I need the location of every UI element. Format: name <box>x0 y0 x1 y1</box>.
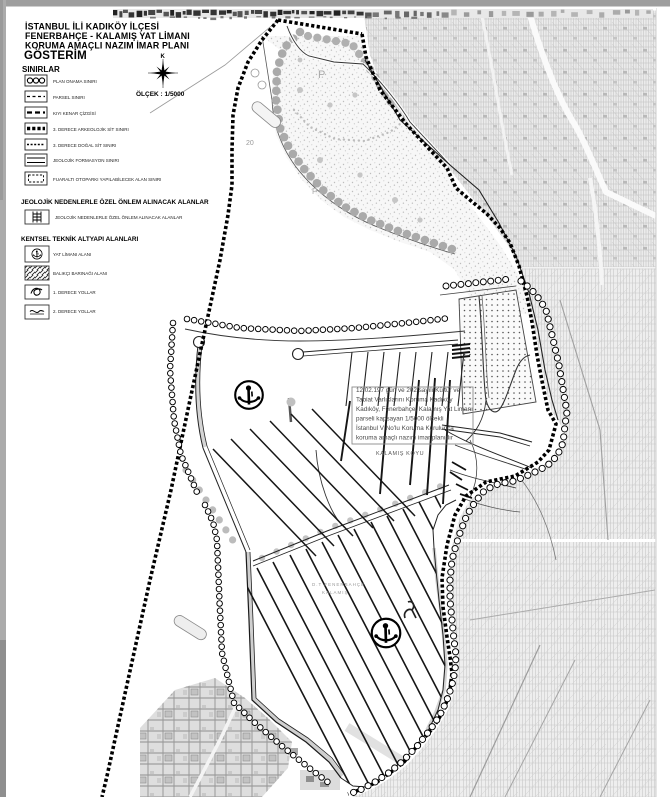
svg-text:ÖLÇEK : 1/5000: ÖLÇEK : 1/5000 <box>136 89 185 98</box>
svg-text:2. DERECE YOLLAR: 2. DERECE YOLLAR <box>53 309 96 314</box>
svg-text:3. DERECE ARKEOLOJİK SİT SINIR: 3. DERECE ARKEOLOJİK SİT SINIRI <box>53 126 129 132</box>
svg-text:12.02.197 gün ve 202 sayılı Kü: 12.02.197 gün ve 202 sayılı Kültür ve <box>356 387 460 394</box>
svg-text:JEOLOJİK NEDENLERLE ÖZEL ÖNLEM: JEOLOJİK NEDENLERLE ÖZEL ÖNLEM ALINACAK … <box>55 214 183 220</box>
svg-text:KIYI KENAR ÇİZGİSİ: KIYI KENAR ÇİZGİSİ <box>53 110 96 116</box>
svg-text:KALAMIŞ KOYU: KALAMIŞ KOYU <box>376 451 424 457</box>
svg-text:P: P <box>318 69 325 81</box>
svg-text:YAT LİMANI ALANI: YAT LİMANI ALANI <box>53 251 91 257</box>
svg-text:D.T FENERBAHÇE: D.T FENERBAHÇE <box>312 582 365 587</box>
svg-text:BALIKÇI BARINAĞI ALANI: BALIKÇI BARINAĞI ALANI <box>53 270 107 276</box>
svg-text:KORUMA AMAÇLI NAZIM İMAR PLANI: KORUMA AMAÇLI NAZIM İMAR PLANI <box>25 41 189 51</box>
svg-text:FENERBAHÇE - KALAMIŞ YAT LİMAN: FENERBAHÇE - KALAMIŞ YAT LİMANI <box>25 31 190 41</box>
svg-text:parseli kapsayan 1/5000 ölç: parseli kapsayan 1/5000 ölçekli <box>356 416 444 423</box>
svg-text:P: P <box>312 187 317 196</box>
svg-text:SINIRLAR: SINIRLAR <box>22 65 60 74</box>
svg-text:koruma amaçlı nazım imar planı: koruma amaçlı nazım imar planıdır <box>356 435 453 442</box>
svg-text:KALAMIŞ: KALAMIŞ <box>322 590 349 595</box>
svg-text:20: 20 <box>246 140 254 147</box>
svg-text:KENTSEL TEKNİK ALTYAPI ALANLAR: KENTSEL TEKNİK ALTYAPI ALANLARI <box>21 234 139 243</box>
svg-text:FUARALTI OTOPARKI YAPILABİLECE: FUARALTI OTOPARKI YAPILABİLECEK ALAN SIN… <box>53 176 161 182</box>
svg-text:3. DERECE DOĞAL SİT SINIRI: 3. DERECE DOĞAL SİT SINIRI <box>53 142 116 148</box>
svg-text:JEOLOJİK NEDENLERLE ÖZEL ÖNLEM: JEOLOJİK NEDENLERLE ÖZEL ÖNLEM ALINACAK … <box>21 197 209 206</box>
svg-text:PLAN ONAMA SINIRI: PLAN ONAMA SINIRI <box>53 79 97 84</box>
svg-text:Tabiat Varlıklarını Koruma Kad: Tabiat Varlıklarını Koruma Kadıköy <box>356 397 453 404</box>
svg-text:1. DERECE YOLLAR: 1. DERECE YOLLAR <box>53 290 96 295</box>
svg-text:GÖSTERİM: GÖSTERİM <box>24 49 87 62</box>
svg-text:Kadıköy, Fenerbahçe, Kalamış Y: Kadıköy, Fenerbahçe, Kalamış Yat Limanı <box>356 406 473 413</box>
svg-text:İstanbul V No'lu Koruma Kurulu: İstanbul V No'lu Koruma Kurulunca <box>356 423 454 432</box>
svg-text:JEOLOJİK FORMASYON SINIRI: JEOLOJİK FORMASYON SINIRI <box>53 157 119 163</box>
svg-text:PARSEL SINIRI: PARSEL SINIRI <box>53 95 85 100</box>
svg-text:İSTANBUL İLİ KADIKÖY İLÇESİ: İSTANBUL İLİ KADIKÖY İLÇESİ <box>25 22 159 32</box>
